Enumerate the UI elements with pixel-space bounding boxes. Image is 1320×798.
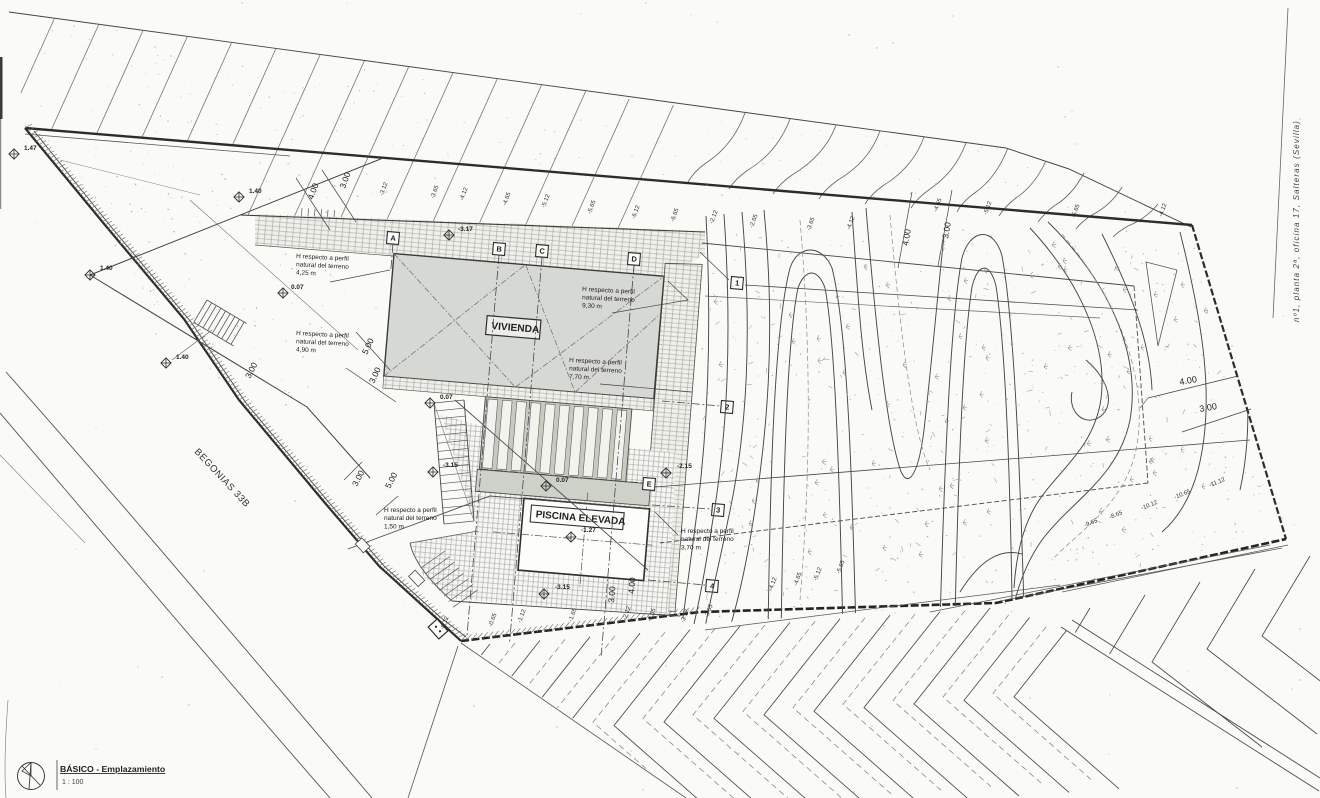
svg-text:-3.17: -3.17 — [458, 226, 473, 233]
svg-text:H respecto a perfil: H respecto a perfil — [681, 528, 734, 535]
svg-text:-1.27: -1.27 — [581, 527, 596, 534]
svg-text:1: 1 — [735, 278, 740, 287]
svg-text:1,50 m: 1,50 m — [384, 523, 404, 530]
svg-text:1.40: 1.40 — [176, 354, 189, 361]
svg-text:3.00: 3.00 — [606, 586, 617, 604]
svg-text:0.07: 0.07 — [440, 394, 453, 401]
svg-text:7,70 m: 7,70 m — [569, 373, 589, 381]
svg-text:H respecto a perfil: H respecto a perfil — [384, 507, 437, 514]
svg-text:3,70 m: 3,70 m — [681, 544, 701, 551]
svg-text:-3.15: -3.15 — [443, 462, 458, 469]
svg-text:9,30 m: 9,30 m — [582, 302, 602, 310]
svg-text:0.07: 0.07 — [556, 477, 569, 484]
svg-text:-2.15: -2.15 — [677, 463, 692, 470]
svg-text:1.47: 1.47 — [24, 145, 37, 152]
svg-text:0.07: 0.07 — [291, 284, 304, 291]
svg-text:natural del terreno: natural del terreno — [681, 536, 734, 543]
svg-text:1.40: 1.40 — [249, 188, 262, 195]
svg-text:1 : 100: 1 : 100 — [62, 779, 84, 786]
svg-text:natural del terreno: natural del terreno — [384, 515, 437, 522]
svg-text:nº1, planta 2ª, oficina 17, Sa: nº1, planta 2ª, oficina 17, Salteras (Se… — [1292, 120, 1301, 322]
svg-text:-3.15: -3.15 — [555, 584, 570, 591]
svg-text:4,25 m: 4,25 m — [296, 269, 316, 277]
svg-text:1.40: 1.40 — [100, 265, 113, 272]
svg-text:4.00: 4.00 — [626, 577, 637, 595]
svg-text:BÁSICO - Emplazamiento: BÁSICO - Emplazamiento — [60, 764, 165, 774]
svg-text:E: E — [646, 479, 652, 488]
svg-text:3: 3 — [716, 505, 721, 514]
svg-text:4,90 m: 4,90 m — [296, 346, 316, 354]
